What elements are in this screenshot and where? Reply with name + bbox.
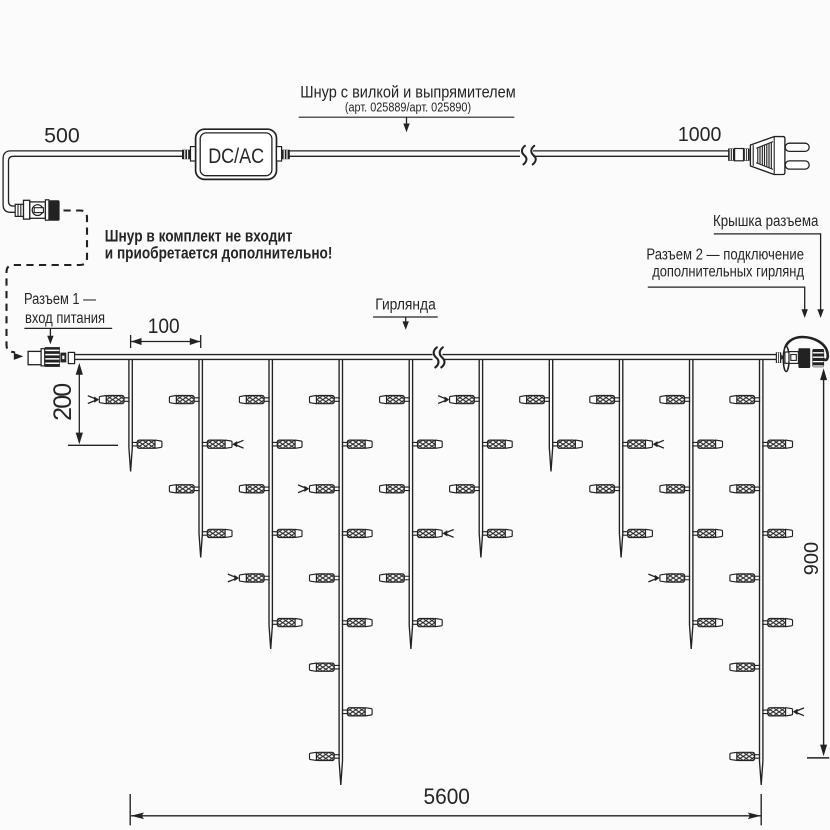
svg-text:Шнур в комплект не входит: Шнур в комплект не входит — [105, 226, 293, 245]
svg-text:100: 100 — [148, 314, 180, 338]
svg-text:500: 500 — [44, 124, 80, 148]
svg-text:Крышка разъема: Крышка разъема — [713, 213, 819, 230]
svg-text:5600: 5600 — [424, 784, 470, 809]
svg-text:1000: 1000 — [678, 123, 722, 146]
svg-text:и приобретается дополнительно!: и приобретается дополнительно! — [105, 244, 333, 263]
svg-text:Разъем 1 —: Разъем 1 — — [24, 291, 96, 308]
svg-text:900: 900 — [801, 542, 823, 575]
svg-text:Разъем 2 — подключение: Разъем 2 — подключение — [646, 247, 804, 264]
svg-text:Гирлянда: Гирлянда — [375, 297, 436, 314]
svg-text:дополнительных гирлянд: дополнительных гирлянд — [652, 264, 804, 281]
svg-text:DC/AC: DC/AC — [208, 145, 264, 168]
svg-text:200: 200 — [49, 384, 77, 421]
svg-text:(арт. 025889/арт. 025890): (арт. 025889/арт. 025890) — [345, 100, 471, 115]
svg-text:вход питания: вход питания — [25, 310, 105, 327]
